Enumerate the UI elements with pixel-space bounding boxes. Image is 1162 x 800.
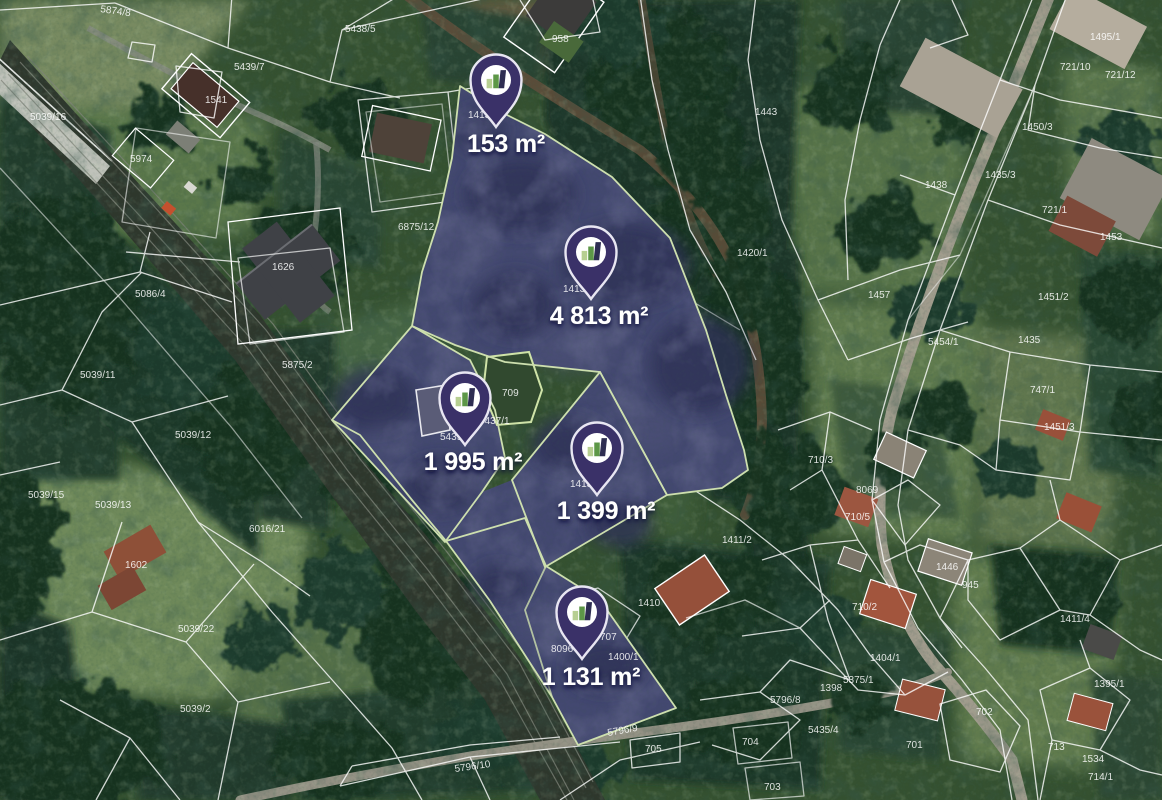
svg-text:6016/21: 6016/21	[249, 524, 286, 535]
svg-text:5435/4: 5435/4	[808, 725, 839, 736]
svg-text:5039/13: 5039/13	[95, 500, 132, 511]
svg-text:5439/7: 5439/7	[234, 62, 265, 73]
svg-text:1453: 1453	[1100, 232, 1123, 243]
svg-text:945: 945	[962, 580, 979, 591]
svg-text:6875/12: 6875/12	[398, 222, 435, 233]
svg-text:1438: 1438	[925, 180, 948, 191]
svg-text:721/1: 721/1	[1042, 205, 1067, 216]
svg-text:1411/4: 1411/4	[1060, 614, 1090, 625]
svg-text:710/3: 710/3	[808, 455, 833, 466]
svg-text:709: 709	[502, 388, 519, 399]
svg-text:1398: 1398	[820, 683, 843, 694]
svg-text:1 131 m²: 1 131 m²	[542, 663, 640, 691]
svg-text:5039/22: 5039/22	[178, 624, 215, 635]
svg-text:705: 705	[645, 744, 662, 755]
svg-text:1626: 1626	[272, 262, 295, 273]
svg-text:1451/3: 1451/3	[1044, 422, 1075, 433]
svg-text:5039/11: 5039/11	[80, 370, 116, 381]
svg-text:1 399 m²: 1 399 m²	[557, 497, 655, 525]
svg-text:721/10: 721/10	[1060, 62, 1091, 73]
svg-text:1400/1: 1400/1	[608, 652, 639, 663]
svg-text:1443: 1443	[755, 107, 778, 118]
svg-text:5039/12: 5039/12	[175, 430, 212, 441]
svg-text:714/1: 714/1	[1088, 772, 1113, 783]
svg-text:710/2: 710/2	[852, 602, 877, 613]
svg-text:1404/1: 1404/1	[870, 653, 901, 664]
svg-text:5875/2: 5875/2	[282, 360, 313, 371]
svg-text:1457: 1457	[868, 290, 891, 301]
svg-text:701: 701	[906, 740, 923, 751]
svg-text:5039/16: 5039/16	[30, 112, 67, 123]
svg-text:5974: 5974	[130, 154, 153, 165]
svg-text:710/5: 710/5	[845, 512, 870, 523]
svg-text:8069: 8069	[856, 485, 879, 496]
svg-text:1420/1: 1420/1	[737, 248, 768, 259]
svg-text:704: 704	[742, 737, 759, 748]
svg-text:713: 713	[1048, 742, 1065, 753]
svg-text:5375/1: 5375/1	[843, 675, 874, 686]
svg-text:153 m²: 153 m²	[467, 130, 545, 158]
svg-text:1451/2: 1451/2	[1038, 292, 1069, 303]
svg-text:958: 958	[552, 34, 569, 45]
svg-text:1450/3: 1450/3	[1022, 122, 1053, 133]
svg-text:5438/5: 5438/5	[345, 24, 376, 35]
svg-text:747/1: 747/1	[1030, 385, 1055, 396]
svg-text:5039/15: 5039/15	[28, 490, 65, 501]
svg-text:1602: 1602	[125, 560, 148, 571]
svg-text:5039/2: 5039/2	[180, 704, 211, 715]
svg-text:1435/3: 1435/3	[985, 170, 1016, 181]
svg-text:703: 703	[764, 782, 781, 793]
svg-text:1 995 m²: 1 995 m²	[424, 448, 522, 476]
svg-text:1411/2: 1411/2	[722, 535, 752, 546]
svg-text:702: 702	[976, 707, 993, 718]
svg-text:1410: 1410	[638, 598, 661, 609]
svg-text:1495/1: 1495/1	[1090, 32, 1121, 43]
svg-text:1446: 1446	[936, 562, 959, 573]
svg-text:5454/1: 5454/1	[928, 337, 959, 348]
svg-text:4 813 m²: 4 813 m²	[550, 302, 648, 330]
svg-text:1541: 1541	[205, 95, 228, 106]
svg-text:721/12: 721/12	[1105, 70, 1136, 81]
svg-text:1435: 1435	[1018, 335, 1041, 346]
svg-text:5796/8: 5796/8	[770, 695, 801, 706]
svg-text:1534: 1534	[1082, 754, 1105, 765]
svg-text:1395/1: 1395/1	[1094, 679, 1125, 690]
svg-text:5086/4: 5086/4	[135, 289, 166, 300]
